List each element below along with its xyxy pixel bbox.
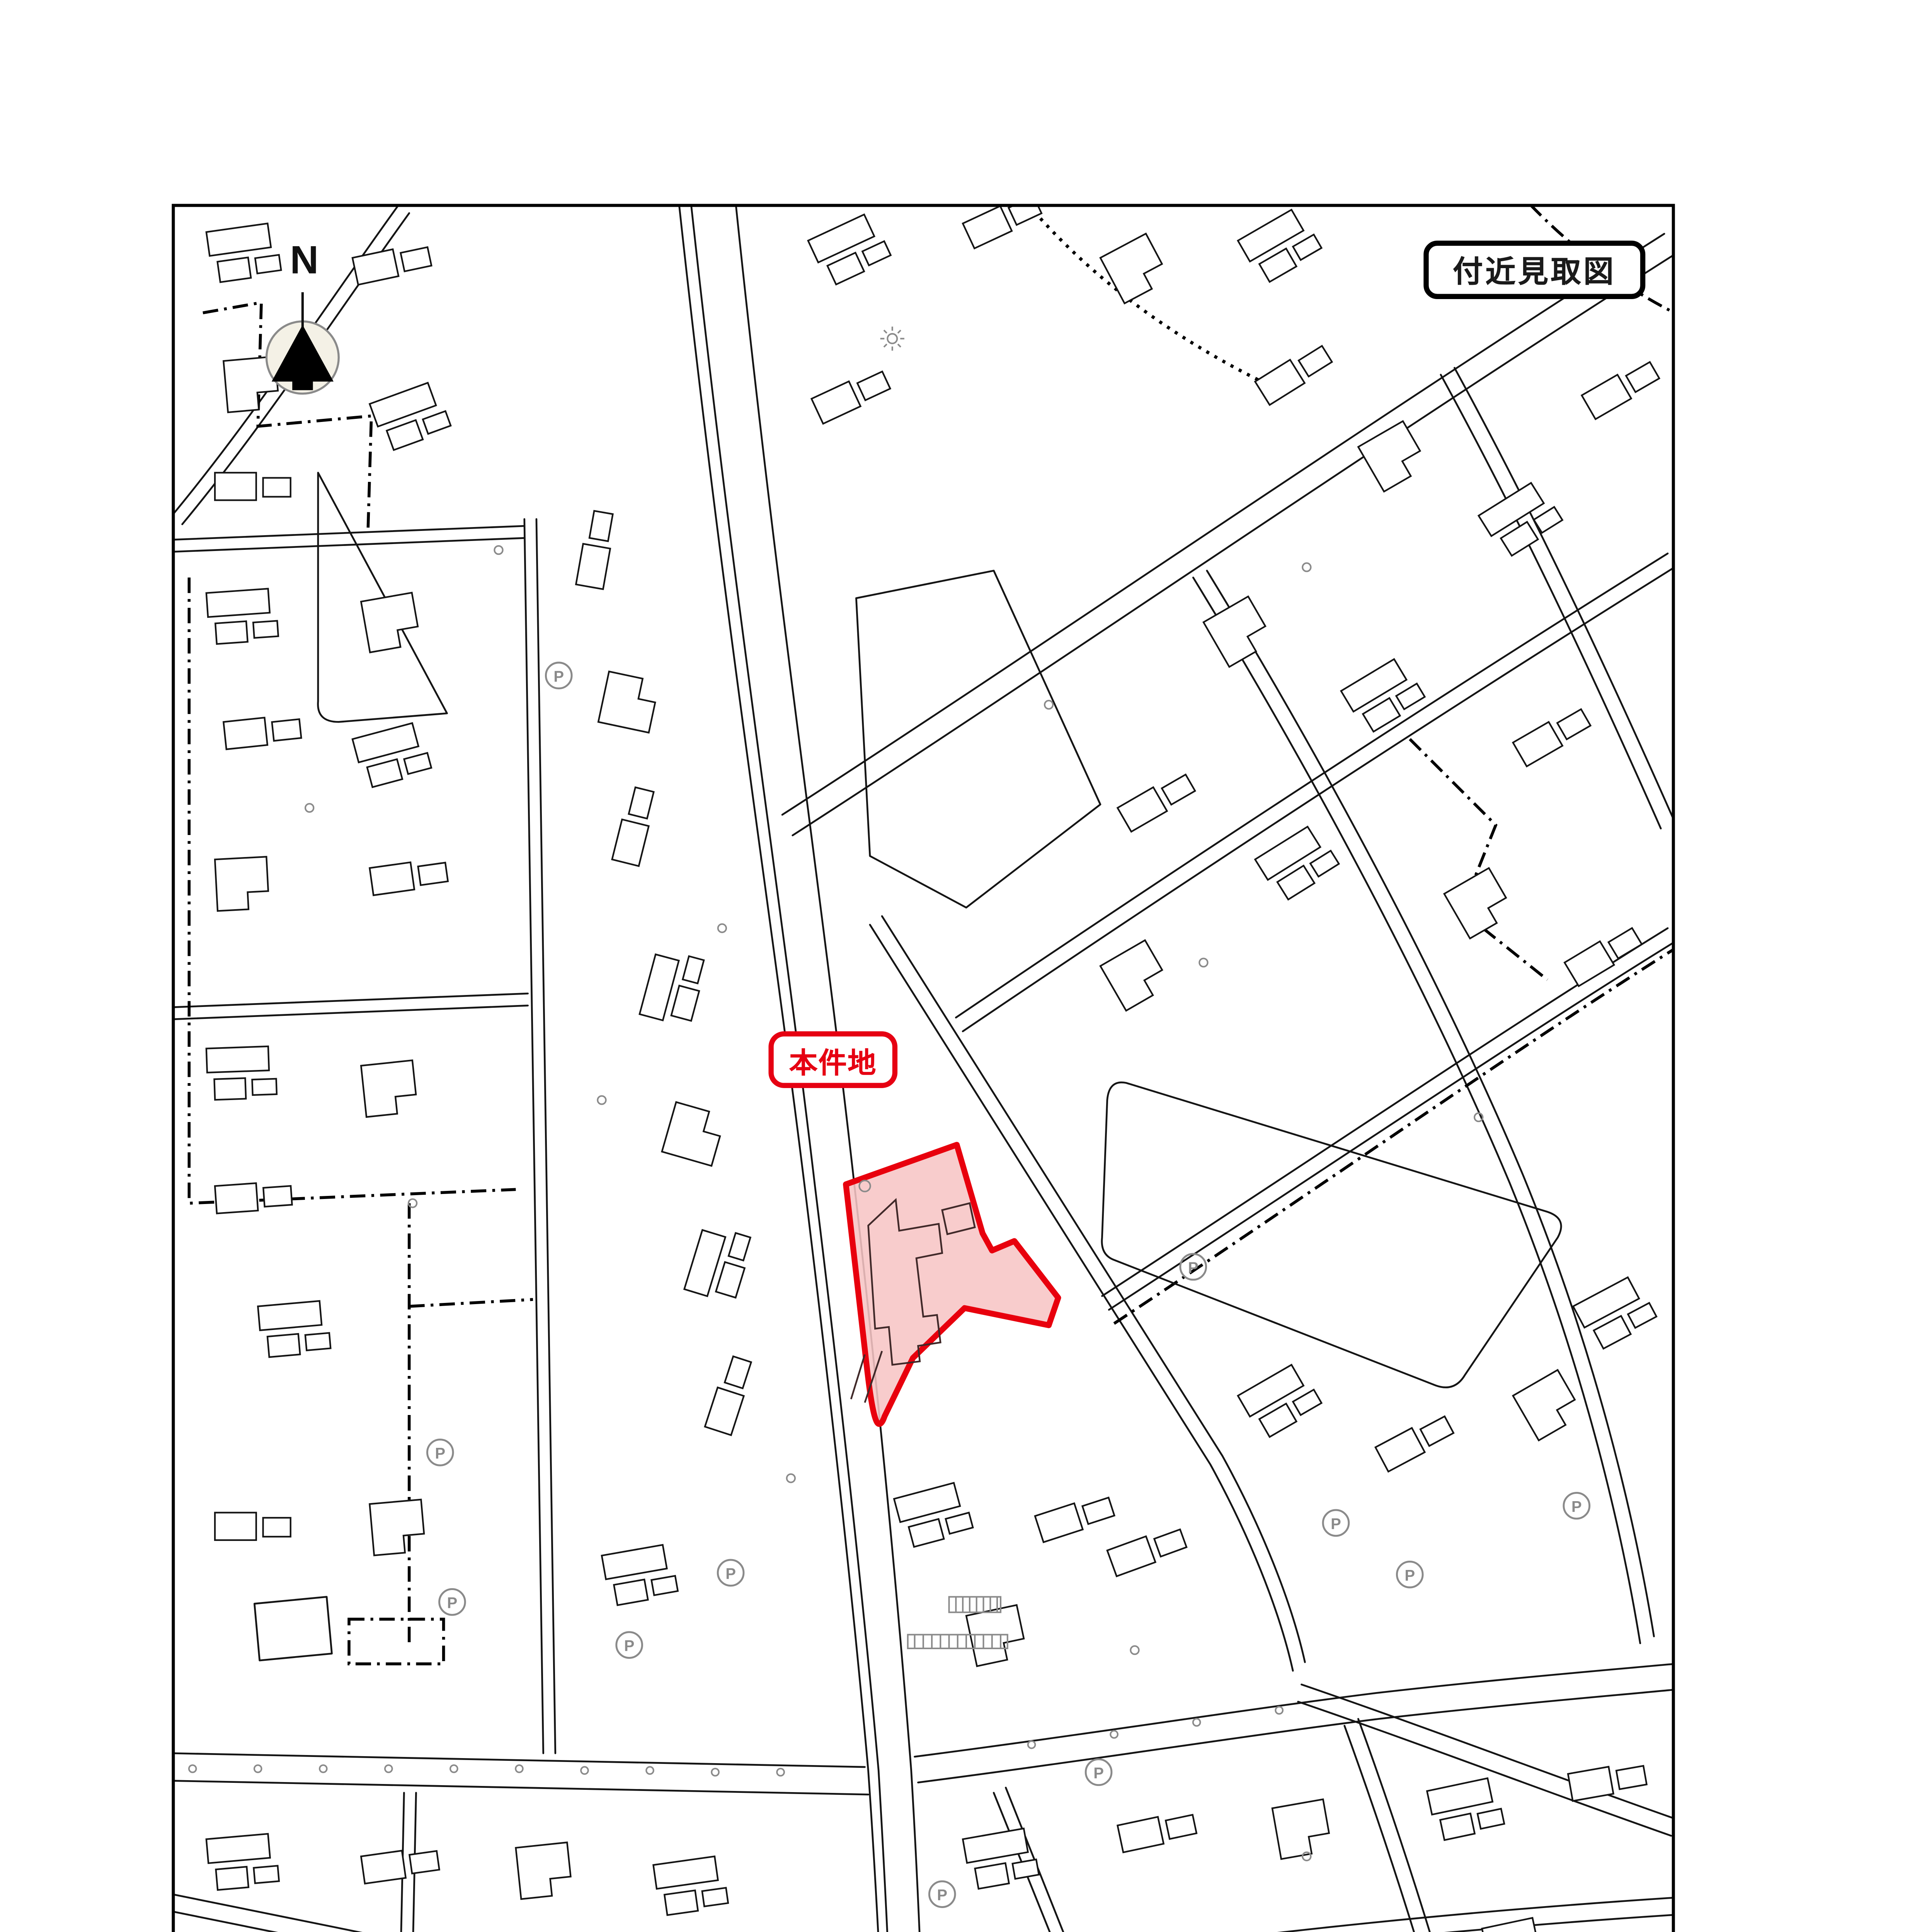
street-tree-row (189, 1707, 1283, 1776)
buildings-layer (206, 192, 1661, 1932)
sun-symbol (880, 327, 904, 350)
svg-text:P: P (624, 1638, 635, 1655)
site-label-text: 本件地 (789, 1039, 877, 1080)
north-arrow-icon (267, 292, 339, 393)
site-parcel (846, 1145, 1058, 1424)
parking-symbol: P (718, 1560, 744, 1586)
parking-symbol: P (439, 1589, 465, 1615)
symbols-layer: P P P P P P P P P P P P (189, 327, 1590, 1932)
parking-symbol: P (546, 663, 572, 689)
title-box: 付近見取図 (1423, 241, 1645, 299)
svg-text:P: P (435, 1445, 445, 1462)
svg-text:P: P (447, 1595, 458, 1612)
title-text: 付近見取図 (1453, 248, 1616, 291)
vicinity-map-board: P P P P P P P P P P P P (0, 0, 1917, 1932)
svg-text:P: P (1188, 1259, 1199, 1276)
svg-text:P: P (553, 668, 564, 685)
site-label: 本件地 (768, 1031, 897, 1088)
parking-symbol: P (1086, 1759, 1112, 1785)
parking-symbol: P (1397, 1561, 1423, 1587)
parking-symbol: P (427, 1440, 453, 1466)
parking-symbol: P (1180, 1254, 1206, 1280)
svg-text:P: P (937, 1887, 947, 1904)
north-label: N (284, 237, 325, 282)
page: P P P P P P P P P P P P (0, 0, 1917, 1932)
parking-symbol: P (929, 1881, 955, 1907)
parking-symbol: P (1564, 1493, 1590, 1519)
parking-symbol: P (616, 1632, 642, 1658)
parking-symbol: P (1323, 1510, 1349, 1536)
svg-text:P: P (1405, 1567, 1415, 1584)
svg-text:P: P (725, 1565, 736, 1582)
svg-text:P: P (1093, 1765, 1104, 1782)
svg-text:P: P (1571, 1498, 1582, 1515)
svg-text:P: P (1331, 1515, 1341, 1532)
